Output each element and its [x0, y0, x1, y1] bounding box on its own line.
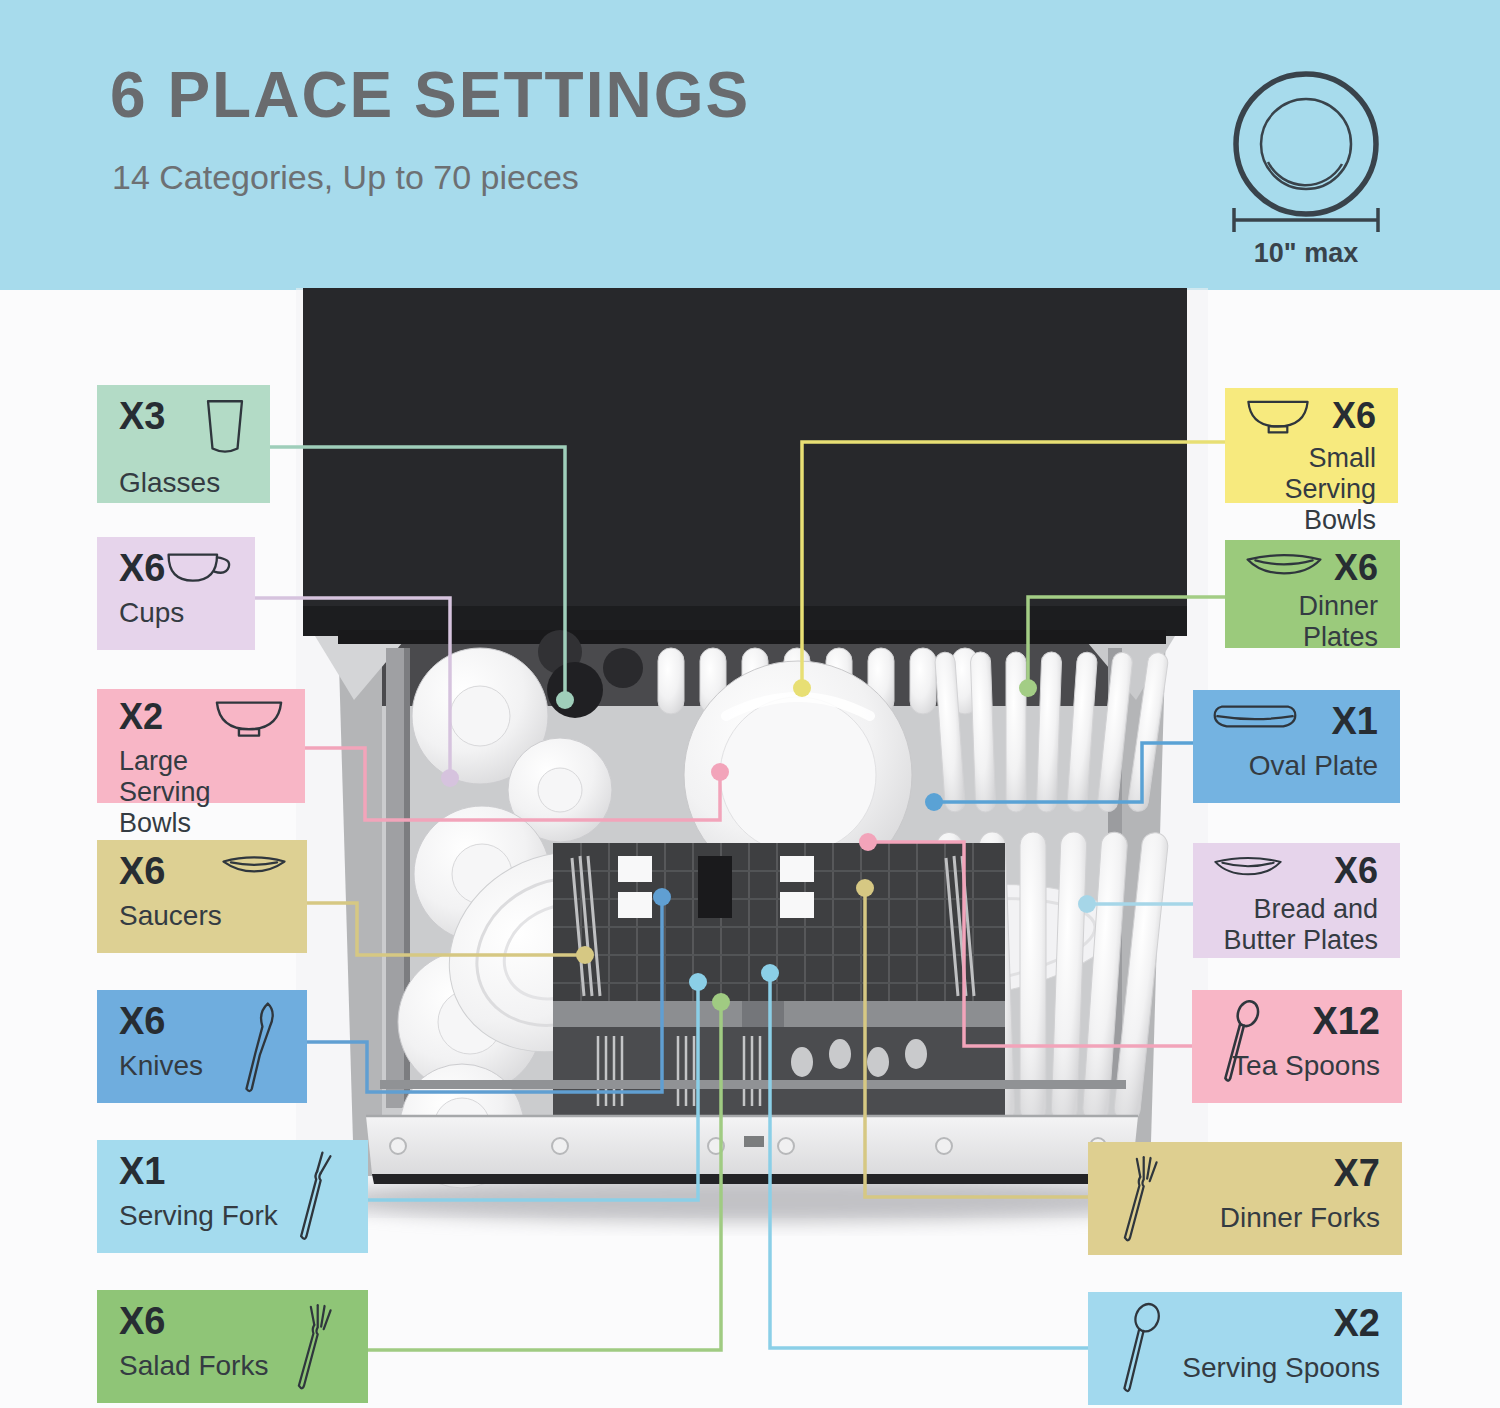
glasses-name: Glasses: [119, 467, 250, 499]
label-oval-plate: X1 Oval Plate: [1193, 690, 1400, 803]
knives-count: X6: [119, 1002, 165, 1042]
tea-spoons-count: X12: [1312, 1002, 1380, 1042]
label-dinner-forks: X7 Dinner Forks: [1088, 1142, 1402, 1255]
cups-count: X6: [119, 549, 165, 589]
label-small-serving-bowls: X6 Small Serving Bowls: [1225, 388, 1398, 503]
bread-and-butter-plates-name: Bread and Butter Plates: [1213, 894, 1378, 956]
label-tea-spoons: X12 Tea Spoons: [1192, 990, 1402, 1103]
label-knives: X6 Knives: [97, 990, 307, 1103]
saucers-count: X6: [119, 852, 165, 892]
label-bread-and-butter-plates: X6 Bread and Butter Plates: [1193, 843, 1400, 958]
salad-forks-count: X6: [119, 1302, 165, 1342]
oval-plate-name: Oval Plate: [1213, 750, 1378, 782]
bread-and-butter-plates-count: X6: [1334, 852, 1378, 890]
serving-fork-count: X1: [119, 1152, 165, 1192]
glasses-count: X3: [119, 397, 165, 437]
large-serving-bowls-count: X2: [119, 698, 163, 736]
cups-name: Cups: [119, 597, 235, 629]
label-large-serving-bowls: X2 Large Serving Bowls: [97, 689, 305, 803]
knife-icon: [237, 1000, 279, 1096]
saucers-name: Saucers: [119, 900, 287, 932]
teaspoon-icon: [1222, 1000, 1262, 1090]
serving-spoons-count: X2: [1334, 1304, 1380, 1344]
glass-icon: [200, 397, 250, 459]
bowl-icon: [1245, 397, 1311, 439]
label-serving-spoons: X2 Serving Spoons: [1088, 1292, 1402, 1405]
dinner-forks-count: X7: [1334, 1154, 1380, 1194]
label-cups: X6 Cups: [97, 537, 255, 650]
plate-icon: [1245, 549, 1323, 577]
serving-fork-icon: [296, 1150, 340, 1246]
fork-icon: [1118, 1152, 1166, 1248]
label-salad-forks: X6 Salad Forks: [97, 1290, 368, 1403]
small-serving-bowls-count: X6: [1332, 397, 1376, 435]
dinner-plates-name: Dinner Plates: [1245, 591, 1378, 653]
label-saucers: X6 Saucers: [97, 840, 307, 953]
fork-icon: [292, 1300, 340, 1396]
bowl-icon: [213, 698, 285, 742]
cup-icon: [165, 549, 235, 589]
plate-icon: [1213, 852, 1283, 878]
spoon-icon: [1118, 1302, 1164, 1398]
oval-plate-count: X1: [1332, 702, 1378, 742]
large-serving-bowls-name: Large Serving Bowls: [119, 746, 285, 839]
oval-plate-icon: [1213, 702, 1297, 732]
label-dinner-plates: X6 Dinner Plates: [1225, 540, 1400, 648]
saucer-icon: [221, 852, 287, 876]
dinner-plates-count: X6: [1334, 549, 1378, 587]
small-serving-bowls-name: Small Serving Bowls: [1245, 443, 1376, 536]
label-glasses: X3 Glasses: [97, 385, 270, 503]
label-serving-fork: X1 Serving Fork: [97, 1140, 368, 1253]
